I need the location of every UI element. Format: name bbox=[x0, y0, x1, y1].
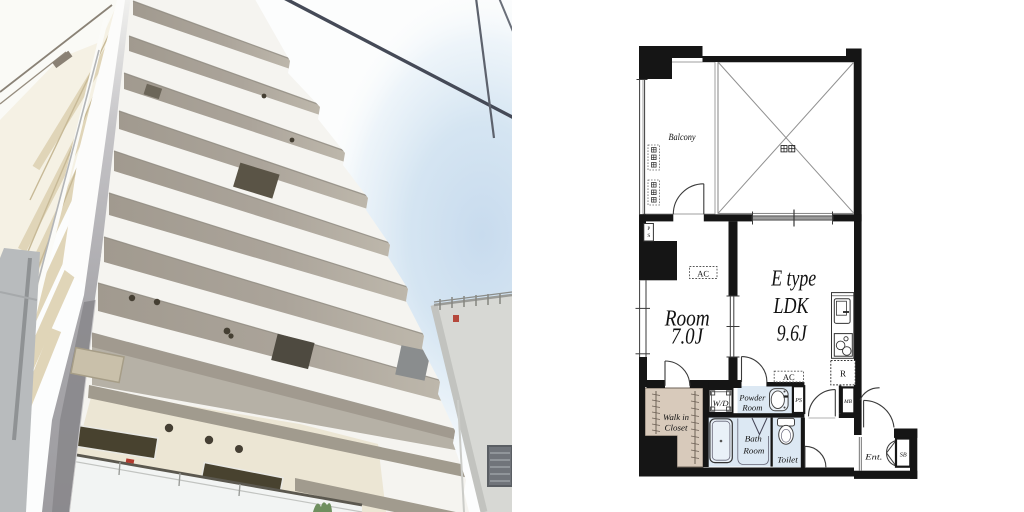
svg-text:PS: PS bbox=[794, 398, 802, 404]
svg-text:Ent.: Ent. bbox=[864, 453, 882, 462]
svg-text:Closet: Closet bbox=[665, 423, 689, 433]
svg-text:W/D: W/D bbox=[713, 399, 729, 408]
svg-text:7.0J: 7.0J bbox=[671, 324, 704, 349]
svg-text:LDK: LDK bbox=[773, 293, 810, 318]
svg-text:Room: Room bbox=[742, 446, 764, 456]
svg-text:E type: E type bbox=[770, 266, 816, 291]
svg-text:Room: Room bbox=[741, 403, 762, 413]
svg-text:P: P bbox=[647, 226, 650, 232]
svg-text:Walk in: Walk in bbox=[663, 412, 689, 422]
svg-text:AC: AC bbox=[697, 268, 709, 278]
svg-text:Toilet: Toilet bbox=[777, 454, 798, 464]
svg-text:9.6J: 9.6J bbox=[777, 321, 808, 346]
svg-text:MB: MB bbox=[843, 399, 852, 405]
svg-text:Powder: Powder bbox=[738, 393, 766, 403]
svg-text:S: S bbox=[647, 233, 650, 239]
svg-text:AC: AC bbox=[783, 372, 795, 382]
svg-text:Balcony: Balcony bbox=[669, 133, 697, 143]
svg-text:SB: SB bbox=[900, 451, 907, 458]
svg-text:R: R bbox=[840, 369, 846, 379]
svg-text:Bath: Bath bbox=[745, 433, 762, 443]
